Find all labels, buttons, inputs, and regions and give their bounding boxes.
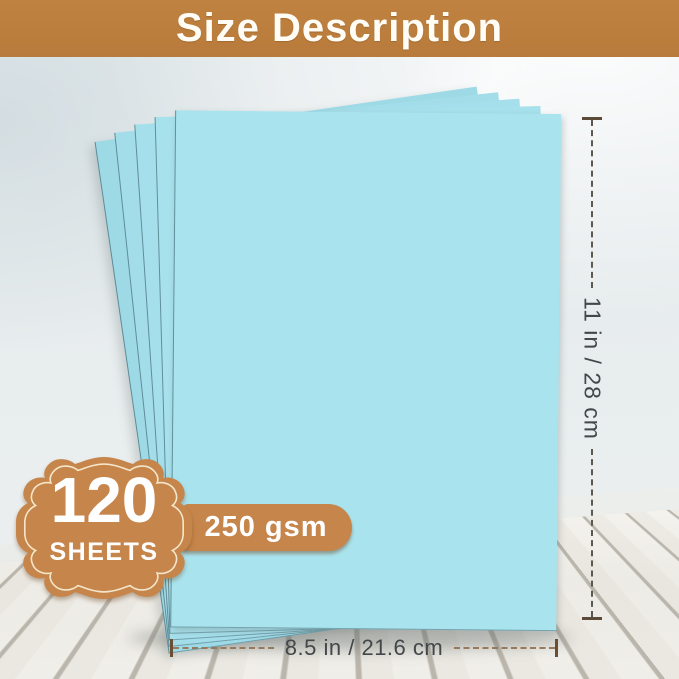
page-title: Size Description — [176, 6, 503, 51]
dashed-segment — [173, 647, 274, 649]
dashed-segment — [591, 449, 593, 617]
width-dimension-label: 8.5 in / 21.6 cm — [285, 635, 443, 661]
size-description-graphic: Size Description 11 in / 28 cm 8.5 in / … — [0, 0, 679, 679]
height-dimension-line: 11 in / 28 cm — [581, 117, 603, 620]
dimension-cap-bottom — [582, 617, 602, 620]
paper-sheet-front — [170, 110, 561, 631]
gsm-weight-pill: 250 gsm — [180, 504, 352, 551]
width-dimension-line: 8.5 in / 21.6 cm — [170, 633, 558, 663]
gsm-weight-label: 250 gsm — [204, 511, 327, 544]
title-banner: Size Description — [0, 0, 679, 57]
sheet-count-badge: 120 SHEETS — [16, 452, 192, 604]
badge-unit-text: SHEETS — [16, 538, 192, 567]
height-dimension-label: 11 in / 28 cm — [579, 288, 606, 449]
badge-count-text: 120 — [16, 466, 192, 534]
dashed-segment — [454, 647, 555, 649]
dashed-segment — [591, 120, 593, 288]
dimension-cap-right — [555, 639, 558, 657]
